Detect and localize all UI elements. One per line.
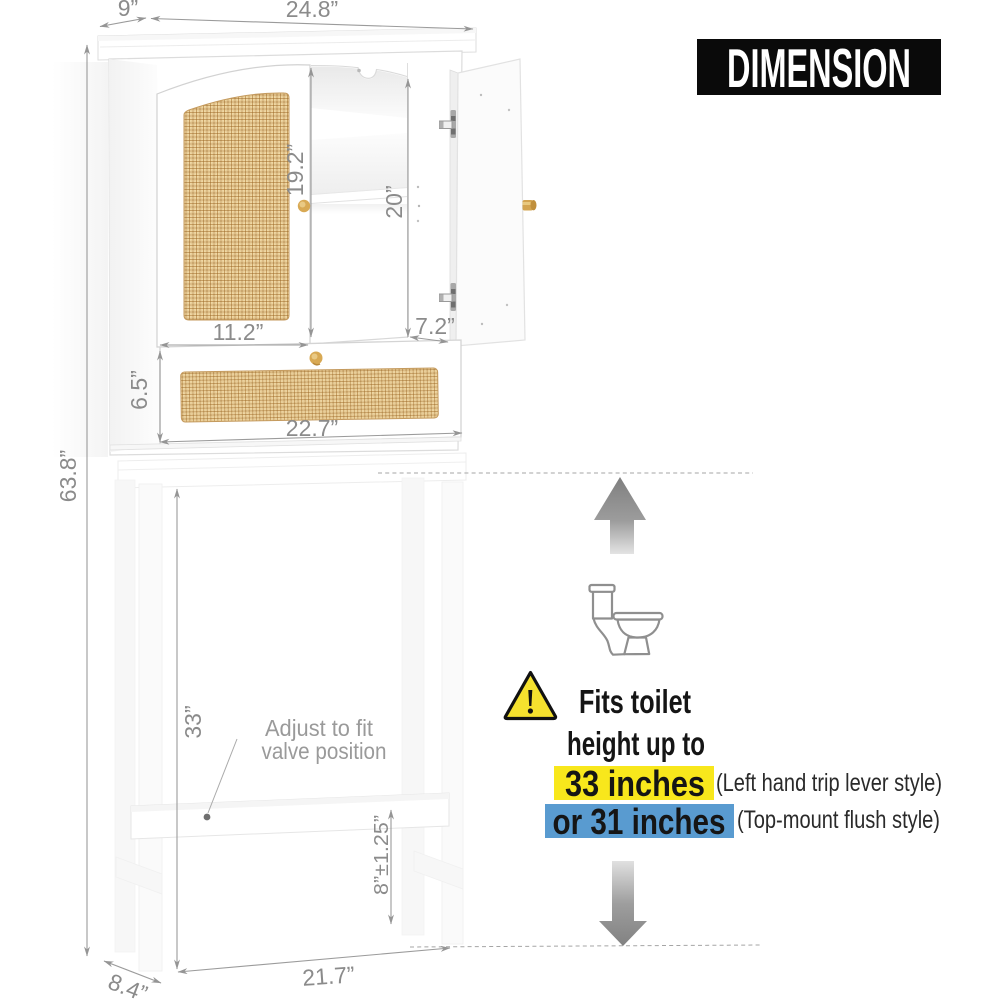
- svg-text:(Left hand trip lever style): (Left hand trip lever style): [716, 769, 942, 797]
- svg-text:8”±1.25”: 8”±1.25”: [371, 815, 393, 895]
- svg-text:63.8”: 63.8”: [55, 450, 81, 502]
- svg-text:valve position: valve position: [262, 738, 387, 764]
- svg-text:height up to: height up to: [567, 725, 705, 762]
- svg-text:33”: 33”: [180, 705, 206, 738]
- svg-text:20”: 20”: [381, 185, 407, 218]
- svg-text:DIMENSION: DIMENSION: [727, 37, 911, 99]
- svg-text:6.5”: 6.5”: [126, 370, 152, 410]
- svg-text:7.2”: 7.2”: [415, 313, 455, 339]
- svg-text:22.7”: 22.7”: [286, 415, 338, 441]
- svg-text:or 31 inches: or 31 inches: [553, 801, 726, 842]
- svg-text:33 inches: 33 inches: [565, 763, 705, 804]
- svg-text:21.7”: 21.7”: [301, 961, 355, 991]
- svg-text:(Top-mount flush style): (Top-mount flush style): [737, 806, 940, 834]
- svg-text:9”: 9”: [118, 0, 138, 21]
- svg-text:24.8”: 24.8”: [286, 0, 338, 22]
- svg-text:Fits toilet: Fits toilet: [579, 683, 691, 720]
- svg-text:19.2”: 19.2”: [282, 144, 308, 196]
- svg-text:11.2”: 11.2”: [213, 319, 264, 345]
